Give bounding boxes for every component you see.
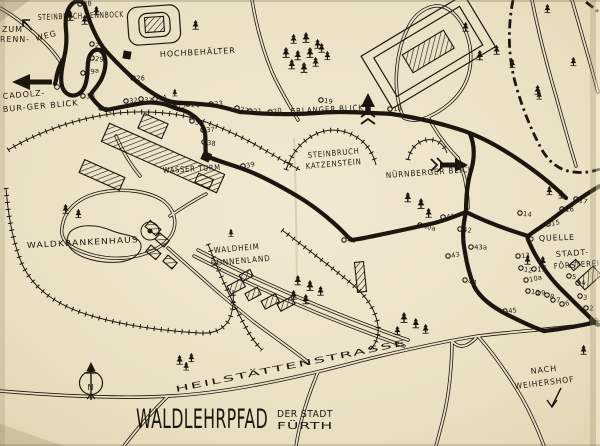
label-renn: RENN- (0, 35, 30, 44)
svg-text:26: 26 (136, 75, 145, 83)
svg-text:45: 45 (508, 306, 518, 315)
svg-text:23: 23 (214, 99, 224, 108)
title-block: WALDLEHRPFAD DER STADT FÜRTH (136, 404, 333, 435)
label-zum: ZUM (2, 25, 23, 34)
map-subtitle-line1: DER STADT (277, 409, 333, 420)
svg-text:29: 29 (95, 55, 105, 64)
compass-north-label: N (88, 383, 95, 392)
svg-text:42: 42 (463, 226, 473, 235)
svg-text:41: 41 (446, 212, 456, 221)
scanned-trail-map: 1234567891010a11121314151617181920212223… (0, 0, 600, 446)
svg-text:43a: 43a (474, 244, 487, 252)
svg-text:28: 28 (83, 0, 93, 8)
svg-text:5: 5 (572, 273, 577, 281)
svg-text:21: 21 (253, 108, 262, 116)
svg-text:32: 32 (129, 96, 139, 105)
svg-text:7: 7 (556, 297, 560, 305)
svg-text:30: 30 (86, 93, 95, 101)
map-canvas: 1234567891010a11121314151617181920212223… (0, 0, 600, 446)
hospital-fountain-center (148, 229, 153, 234)
svg-text:24: 24 (191, 101, 201, 110)
rennbock-quarry-core (144, 16, 164, 32)
svg-text:11: 11 (537, 266, 546, 274)
hut-icon (122, 50, 131, 59)
svg-text:4: 4 (581, 279, 586, 287)
svg-text:18: 18 (393, 104, 403, 113)
svg-text:16: 16 (565, 206, 574, 214)
svg-text:38: 38 (207, 139, 217, 148)
svg-text:14: 14 (523, 210, 533, 219)
svg-text:37: 37 (206, 125, 216, 134)
svg-text:40: 40 (347, 237, 356, 245)
label-quelle: QUELLE (539, 233, 575, 243)
svg-text:33: 33 (144, 96, 154, 105)
map-title: WALDLEHRPFAD (136, 404, 268, 435)
svg-text:9: 9 (541, 289, 546, 297)
svg-text:10: 10 (531, 288, 541, 297)
map-subtitle-line2: FÜRTH (277, 421, 333, 432)
svg-text:2: 2 (589, 305, 593, 313)
svg-text:35: 35 (170, 100, 179, 108)
